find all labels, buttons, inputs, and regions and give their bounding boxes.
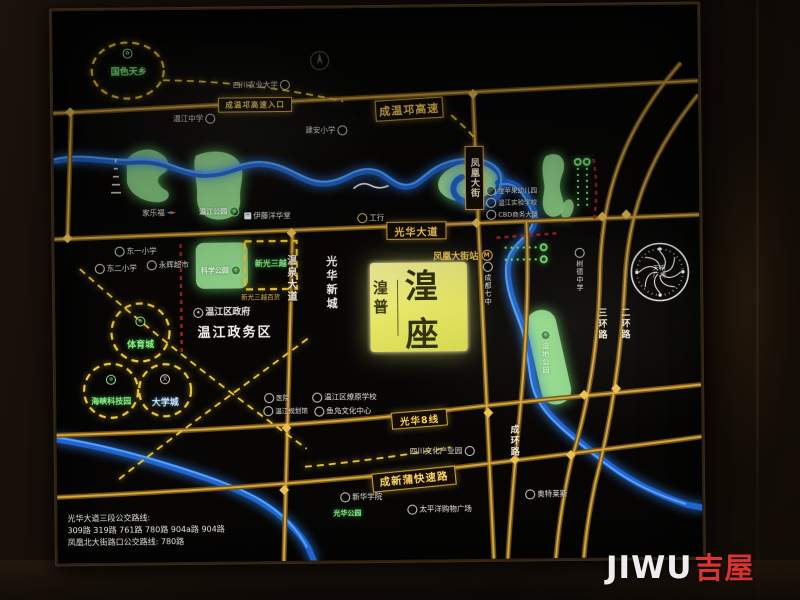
park-label-science-park: 科学公园⊕ bbox=[201, 265, 241, 275]
park-label-wetland-park: ⊕ 湿地公园 bbox=[540, 330, 550, 374]
school-icon bbox=[575, 248, 585, 258]
hospital-icon bbox=[264, 393, 274, 403]
school-icon bbox=[95, 264, 105, 274]
area-label-wenjiang-admin-district: 温江政务区 bbox=[197, 321, 272, 341]
school-icon bbox=[483, 262, 493, 272]
poi-cbd-business-tower: CBD商务大厦 bbox=[486, 209, 538, 220]
school-icon bbox=[312, 393, 322, 403]
road-label-chengwenqiong-expressway: 成温邛高速 bbox=[375, 97, 444, 122]
road-label-fenghuang-street: 凤凰大街 bbox=[465, 146, 485, 210]
poi-golden-apple-kindergarten: 金苹果幼儿园 bbox=[486, 185, 537, 196]
university-icon: 文 bbox=[160, 374, 170, 384]
park-icon: ⊕ bbox=[540, 330, 550, 340]
sports-icon: ⊕ bbox=[135, 316, 145, 326]
poi-wenjiang-district-government: ★温江区政府 bbox=[193, 307, 250, 318]
zone-sublabel-xinguang-store: 新光三越百货 bbox=[241, 291, 280, 301]
bank-icon bbox=[357, 213, 367, 223]
poi-sichuan-culture-industry-park: 四川文化产业园 bbox=[410, 446, 475, 457]
school-icon bbox=[340, 492, 350, 502]
project-name-main: 湟座 bbox=[405, 259, 468, 356]
legend-line-2: 309路 319路 761路 780路 904a路 904路 bbox=[68, 524, 225, 538]
building-icon bbox=[486, 210, 496, 220]
government-icon bbox=[263, 406, 273, 416]
watermark-cn: 吉屋 bbox=[694, 551, 754, 585]
road-name-chenghuan-road: 成环路 bbox=[507, 425, 520, 458]
poi-hospital: 医院 bbox=[264, 393, 289, 403]
map-board: 成温邛高速入口 成温邛高速 光华大道 光华8线 成新蒲快速路 凤凰大街 温泉大道… bbox=[52, 5, 703, 564]
poi-sichuan-agricultural-university: 四川农业大学 bbox=[233, 80, 290, 91]
poi-icbc-bank: 工行 bbox=[357, 213, 384, 223]
poi-yufu-culture-center: 鱼凫文化中心 bbox=[314, 406, 371, 417]
zone-label-guanghua-park: 光华公园 bbox=[333, 508, 361, 518]
road-name-second-ring: 二环路 bbox=[618, 307, 631, 340]
area-label-guanghua-newtown: 光华新城 bbox=[323, 255, 340, 311]
river-islet-stream bbox=[354, 183, 388, 188]
wall-reflection bbox=[698, 130, 798, 470]
metro-icon: M bbox=[481, 250, 492, 261]
bus-route-legend: 光华大道三段公交路线: 309路 319路 761路 780路 904a路 90… bbox=[67, 512, 225, 550]
school-icon bbox=[205, 114, 215, 124]
project-name-side: 湟普 bbox=[370, 279, 399, 335]
poi-carrefour: 家乐福◄► bbox=[142, 209, 176, 217]
jiwu-watermark: JIWU吉屋 bbox=[606, 545, 754, 587]
supermarket-icon bbox=[147, 260, 157, 270]
tianfu-square-label: 天府广场 bbox=[630, 242, 691, 303]
road-junction-nodes bbox=[61, 87, 634, 497]
school-icon bbox=[280, 80, 290, 90]
zone-label-sports-city: 体育城 bbox=[120, 337, 162, 350]
poi-shude-middle-school: 树德中学 bbox=[575, 248, 585, 292]
project-marker: 湟普 湟座 bbox=[370, 262, 468, 352]
poi-xinhua-college: 新华学院 bbox=[340, 492, 382, 502]
school-icon bbox=[115, 247, 125, 257]
poi-liaoyuan-school: 温江区燎原学校 bbox=[312, 392, 377, 403]
poi-donger-primary-school: 东二小学 bbox=[95, 264, 137, 274]
zone-label-university-city: 大学城 bbox=[144, 395, 186, 408]
shopping-icon bbox=[525, 489, 535, 499]
wall-panel-seam bbox=[756, 0, 759, 600]
poi-pacific-shopping-plaza: 太平洋购物广场 bbox=[407, 504, 472, 515]
poi-wenjiang-experimental-school: 温江实验学校 bbox=[486, 197, 537, 208]
poi-jianan-primary-school: 建安小学 bbox=[305, 125, 347, 135]
park-label-wenjiang-park: 温江公园⊕ bbox=[199, 206, 239, 216]
shopping-icon bbox=[407, 505, 417, 515]
poi-wenjiang-middle-school: 温江中学 bbox=[173, 114, 215, 124]
zone-label-xinguang-sanyue: 新光三越 bbox=[247, 258, 295, 270]
ito-yokado-icon: ~ bbox=[244, 213, 251, 220]
government-icon: ★ bbox=[193, 308, 203, 318]
park-icon: ⊕ bbox=[106, 375, 116, 385]
school-icon bbox=[486, 198, 496, 208]
poi-ito-yokado: ~伊藤洋华堂 bbox=[244, 212, 291, 220]
poi-dongyi-primary-school: 东一小学 bbox=[115, 246, 157, 256]
school-icon bbox=[337, 125, 347, 135]
road-label-guanghua-avenue: 光华大道 bbox=[386, 221, 446, 240]
legend-line-3: 凤凰北大街路口公交路线: 780路 bbox=[68, 536, 225, 550]
compass-icon bbox=[311, 51, 329, 69]
poi-yonghui-supermarket: 永辉超市 bbox=[147, 260, 189, 270]
poi-chengdu-no7-middle-school: 成都七中 bbox=[483, 262, 493, 306]
zone-label-haixia-tech-park: 海峡科技园 bbox=[85, 396, 137, 408]
map-board-frame: 成温邛高速入口 成温邛高速 光华大道 光华8线 成新蒲快速路 凤凰大街 温泉大道… bbox=[49, 2, 706, 567]
park-icon bbox=[464, 446, 474, 456]
poi-planning-hall: 温江规划馆 bbox=[263, 406, 308, 416]
kindergarten-icon bbox=[486, 186, 496, 196]
zone-label-guose-tianxiang: 国色天乡 bbox=[101, 64, 157, 78]
poi-outlets: 奥特莱斯 bbox=[525, 489, 567, 499]
watermark-latin: JIWU bbox=[606, 550, 692, 586]
road-label-expressway-entrance: 成温邛高速入口 bbox=[218, 97, 292, 113]
road-name-third-ring: 三环路 bbox=[595, 308, 608, 341]
carrefour-icon: ◄► bbox=[167, 210, 176, 216]
flower-icon: ✿ bbox=[123, 49, 133, 59]
culture-icon bbox=[314, 407, 324, 417]
park-icon: ⊕ bbox=[231, 265, 241, 275]
park-icon: ⊕ bbox=[229, 206, 239, 216]
